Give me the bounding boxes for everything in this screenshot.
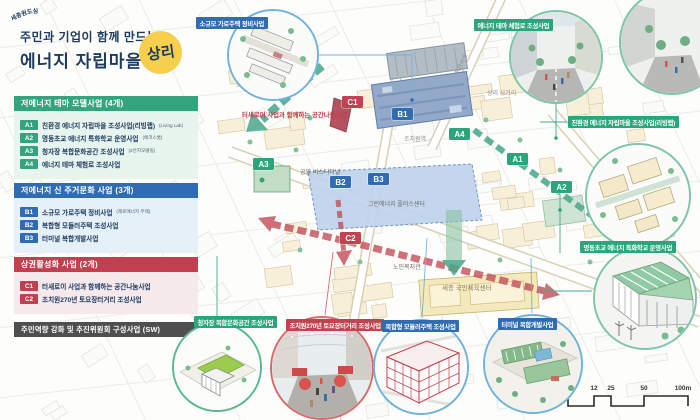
scale-tick-50: 50	[640, 385, 647, 392]
label-sports-center: 세종 국민체육센터	[442, 282, 492, 292]
label-a4: 에너지 테마 체험로 조성사업	[42, 159, 120, 169]
legend-item-c1: C1 터새로이 사업과 함께하는 공간나눔사업	[20, 281, 194, 291]
label-crossroad: 상리 사거리	[487, 88, 516, 97]
badge-a4: A4	[20, 159, 38, 169]
legend-item-a2: A2 명동초교 에너지 특화학교 운영사업 (에코스쿨)	[20, 133, 194, 143]
chip-eco-school: 명동초교 에너지 특화학교 운영사업	[580, 241, 676, 253]
callout-market-street-image	[270, 316, 374, 420]
label-a1: 친환경 에너지 자립마을 조성사업(리빙랩)	[42, 120, 155, 130]
scale-tick-12: 12	[590, 385, 597, 392]
chip-living-lab: 친환경 에너지 자립마을 조성사업(리빙랩)	[568, 116, 679, 128]
callout-living-lab-image	[585, 143, 691, 249]
note-a1: (Living Lab)	[159, 123, 183, 128]
map-badge-c1: C1	[342, 96, 363, 108]
chip-street-housing: 소규모 가로주택 정비사업	[196, 17, 268, 29]
label-c1: 터새로이 사업과 함께하는 공간나눔사업	[42, 281, 151, 291]
scale-tick-100: 100m	[675, 385, 692, 392]
badge-b1: B1	[20, 207, 38, 217]
logo-arc-label: 세종원도심	[9, 7, 38, 23]
note-b1: (제로에너지 주택)	[116, 209, 150, 215]
svg-text:세종원도심: 세종원도심	[9, 7, 38, 23]
label-senior-center: 노인복지관	[393, 262, 421, 271]
poster-title: 주민과 기업이 함께 만드는 에너지 자립마을	[20, 28, 158, 72]
legend-panel: 저에너지 테마 모델사업 (4개) A1 친환경 에너지 자립마을 조성사업(리…	[14, 96, 198, 337]
note-a3: (2안지모델링)	[129, 148, 156, 154]
callout-modular-housing-image	[373, 319, 469, 415]
map-badge-a3: A3	[253, 158, 274, 170]
label-b3: 터미널 복합개발사업	[42, 233, 98, 243]
scale-tick-25: 25	[607, 385, 614, 392]
legend-section-a-body: A1 친환경 에너지 자립마을 조성사업(리빙랩) (Living Lab) A…	[14, 111, 198, 179]
badge-c1: C1	[20, 281, 38, 291]
legend-section-c-header: 상권활성화 사업 (2개)	[14, 257, 198, 272]
chip-terminal: 터미널 복합개발사업	[498, 318, 557, 330]
map-badge-b1: B1	[392, 108, 413, 120]
label-c1-note: 터새로이 사업과 함께하는 공간나눔사업	[242, 110, 347, 119]
legend-item-b3: B3 터미널 복합개발사업	[20, 233, 194, 243]
legend-section-a-header: 저에너지 테마 모델사업 (4개)	[14, 96, 198, 111]
label-plus-center: 그린에너지 플러스센터	[368, 199, 425, 208]
legend-section-c-body: C1 터새로이 사업과 함께하는 공간나눔사업 C2 조치원270년 토요장터거…	[14, 272, 198, 314]
chip-theme-road: 에너지 테마 체험로 조성사업	[474, 19, 553, 31]
label-station: 조치원역	[404, 134, 426, 143]
callout-culture-space-image	[172, 322, 262, 412]
label-a3: 청자장 복합문화공간 조성사업	[42, 146, 125, 156]
label-c2: 조치원270년 토요장터거리 조성사업	[42, 294, 142, 304]
map-badge-b3: B3	[368, 173, 389, 185]
legend-section-b-body: B1 소규모 가로주택 정비사업 (제로에너지 주택) B2 복합형 모듈러주택…	[14, 198, 198, 253]
badge-a1: A1	[20, 120, 38, 130]
logo-text: 상리	[145, 40, 175, 65]
legend-item-b2: B2 복합형 모듈러주택 조성사업	[20, 220, 194, 230]
school-zone	[542, 195, 585, 226]
legend-item-a1: A1 친환경 에너지 자립마을 조성사업(리빙랩) (Living Lab)	[20, 120, 194, 130]
badge-a3: A3	[20, 146, 38, 156]
logo-arc-text: 세종원도심	[0, 0, 70, 30]
map-badge-c2: C2	[340, 232, 361, 244]
map-badge-a2: A2	[551, 181, 572, 193]
legend-section-b-header: 저에너지 신 주거문화 사업 (3개)	[14, 183, 198, 198]
chip-culture-space: 청자장 복합문화공간 조성사업	[194, 316, 277, 328]
chip-market-street: 조치원270년 토요장터거리 조성사업	[286, 319, 384, 331]
legend-item-a4: A4 에너지 테마 체험로 조성사업	[20, 159, 194, 169]
callout-eco-school-image	[593, 246, 697, 350]
note-a2: (에코스쿨)	[143, 135, 163, 141]
energy-village-masterplan-poster: 주민과 기업이 함께 만드는 에너지 자립마을 상리 세종원도심 저에너지 테마…	[0, 0, 700, 420]
legend-item-c2: C2 조치원270년 토요장터거리 조성사업	[20, 294, 194, 304]
label-b2: 복합형 모듈러주택 조성사업	[42, 220, 118, 230]
label-b1: 소규모 가로주택 정비사업	[42, 207, 112, 217]
legend-item-a3: A3 청자장 복합문화공간 조성사업 (2안지모델링)	[20, 146, 194, 156]
map-badge-b2: B2	[330, 176, 351, 188]
sports-center-block	[419, 272, 539, 316]
map-badge-a1: A1	[507, 153, 528, 165]
legend-item-b1: B1 소규모 가로주택 정비사업 (제로에너지 주택)	[20, 207, 194, 217]
title-line2: 에너지 자립마을	[20, 47, 158, 72]
map-badge-a4: A4	[449, 128, 470, 140]
label-bus-terminal: 공영 버스터미널	[300, 167, 340, 176]
label-a2: 명동초교 에너지 특화학교 운영사업	[42, 133, 139, 143]
badge-c2: C2	[20, 294, 38, 304]
badge-b3: B3	[20, 233, 38, 243]
title-line1: 주민과 기업이 함께 만드는	[20, 28, 158, 45]
village-logo: 상리	[139, 31, 182, 74]
badge-a2: A2	[20, 133, 38, 143]
a3-dot	[260, 178, 265, 183]
badge-b2: B2	[20, 220, 38, 230]
sw-program-bar: 주민역량 강화 및 추진위원회 구성사업 (SW)	[14, 322, 198, 337]
chip-modular-housing: 복합형 모듈러주택 조성사업	[382, 320, 459, 332]
